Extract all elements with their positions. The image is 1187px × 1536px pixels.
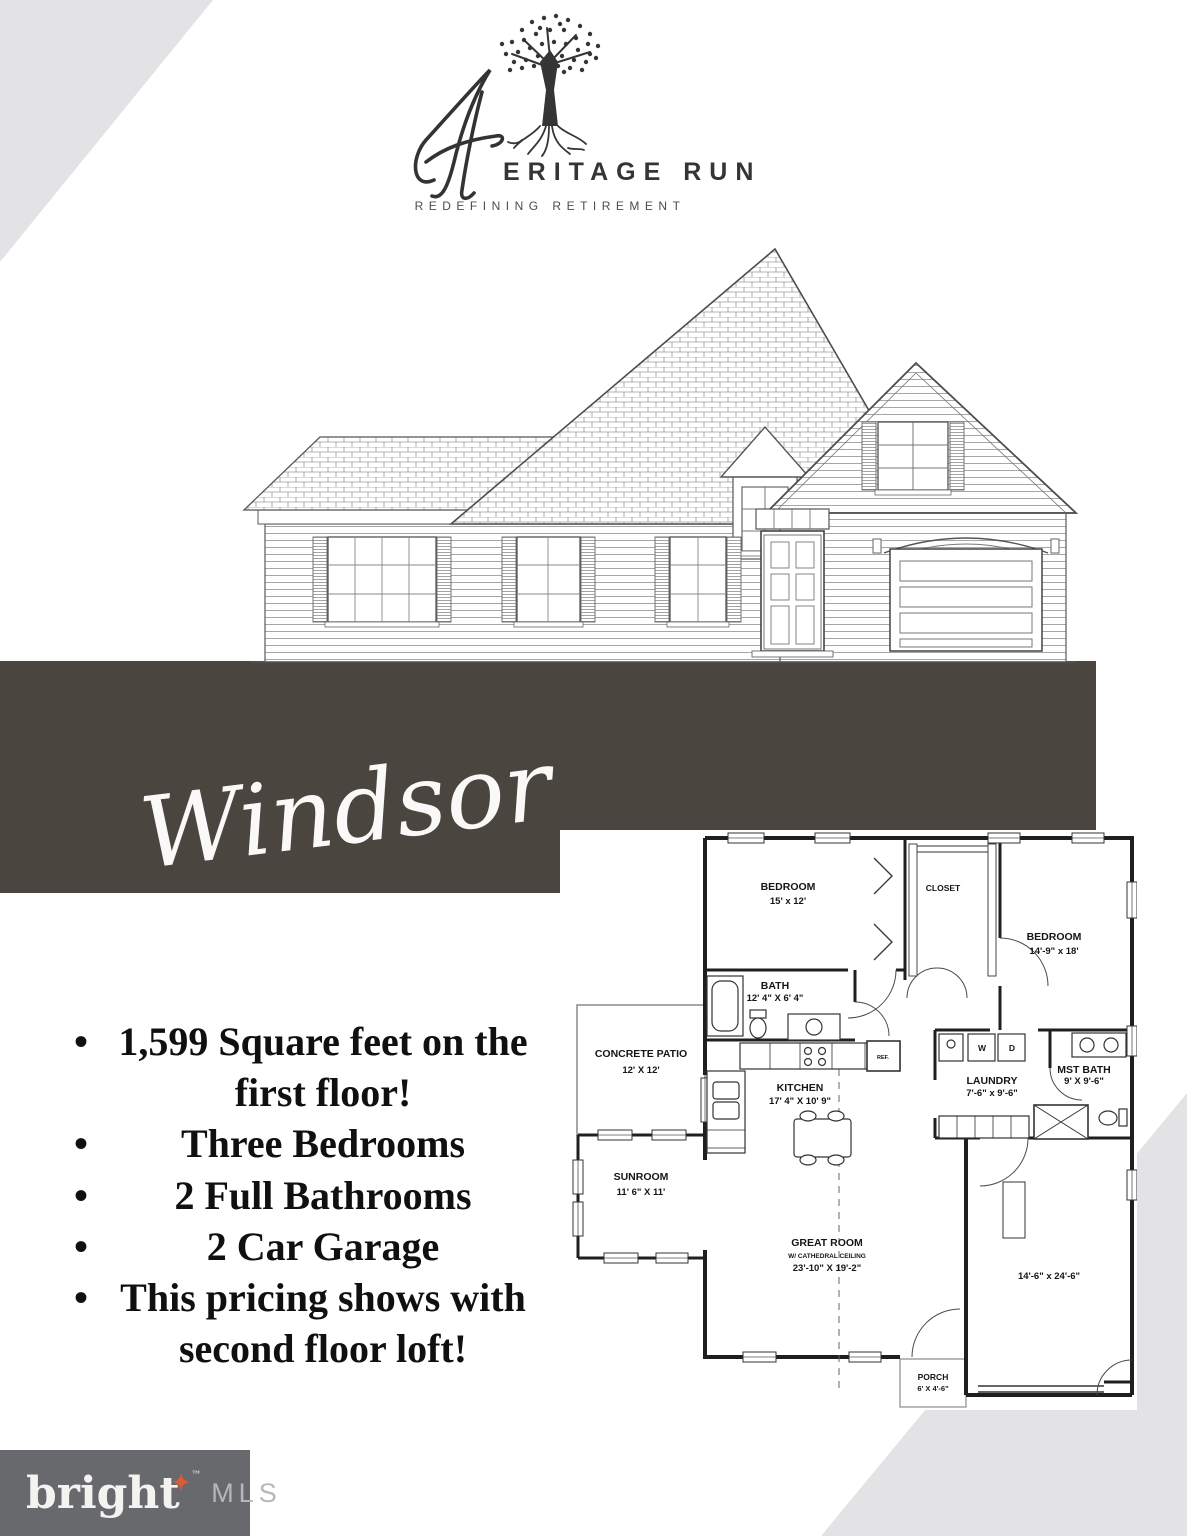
room-label-great-room: GREAT ROOM: [791, 1237, 863, 1249]
room-dims-bath: 12' 4" X 6' 4": [747, 993, 804, 1004]
garage-stair: [1003, 1182, 1025, 1238]
chair: [800, 1111, 816, 1121]
room-dims-garage: 14'-6" x 24'-6": [1018, 1271, 1080, 1282]
mls-label: MLS: [211, 1478, 282, 1509]
room-label-bedroom-1: BEDROOM: [761, 881, 816, 893]
feature-item: •Three Bedrooms: [46, 1118, 566, 1169]
room-sub-great-room: W/ CATHEDRAL CEILING: [788, 1253, 866, 1260]
star-icon: ✦: [172, 1470, 190, 1496]
bullet-dot: •: [74, 1016, 88, 1067]
room-dims-kitchen: 17' 4" X 10' 9": [769, 1096, 831, 1107]
garage-door-mark: [978, 1386, 1104, 1392]
floorplan-drawing: BEDROOM 15' x 12' CLOSET BEDROOM 14'-9" …: [560, 830, 1137, 1410]
bullet-dot: •: [74, 1118, 88, 1169]
room-label-closet: CLOSET: [926, 883, 961, 893]
house-elevation-drawing: [228, 247, 1088, 667]
kitchen-sink: [713, 1082, 739, 1099]
room-dims-bedroom-2: 14'-9" x 18': [1029, 946, 1078, 957]
flyer-page: ERITAGE RUN REDEFINING RETIREMENT: [0, 0, 1187, 1536]
room-label-mst-bath: MST BATH: [1057, 1064, 1110, 1076]
label-washer: W: [978, 1043, 987, 1053]
script-h-initial: [404, 62, 514, 202]
stove-burner: [805, 1048, 812, 1055]
hall-toilet-tank: [1119, 1109, 1127, 1126]
feature-item: •This pricing shows with second floor lo…: [46, 1272, 566, 1374]
room-dims-bedroom-1: 15' x 12': [770, 896, 806, 907]
room-dims-mst-bath: 9' X 9'-6": [1064, 1076, 1104, 1087]
room-label-kitchen: KITCHEN: [777, 1082, 824, 1094]
door-swings: [848, 938, 1132, 1395]
top-left-corner-triangle: [0, 0, 213, 262]
toilet: [750, 1018, 766, 1038]
floorplan-panel: BEDROOM 15' x 12' CLOSET BEDROOM 14'-9" …: [560, 830, 1137, 1410]
room-dims-porch: 6' X 4'-6": [917, 1384, 949, 1393]
brightmls-bar: bright✦™ MLS: [0, 1450, 250, 1536]
porch-lamp-left: [873, 539, 881, 553]
front-window-3: [655, 537, 741, 627]
feature-item: •1,599 Square feet on the first floor!: [46, 1016, 566, 1118]
room-label-laundry: LAUNDRY: [967, 1075, 1018, 1087]
toilet-tank: [750, 1010, 766, 1018]
feature-list: •1,599 Square feet on the first floor! •…: [46, 1016, 566, 1374]
bullet-dot: •: [74, 1272, 88, 1323]
room-label-bath: BATH: [761, 980, 789, 992]
room-label-bedroom-2: BEDROOM: [1027, 931, 1082, 943]
bullet-dot: •: [74, 1221, 88, 1272]
front-window-2: [502, 537, 595, 627]
room-dims-sunroom: 11' 6" X 11': [617, 1187, 666, 1198]
label-dryer: D: [1009, 1043, 1015, 1053]
trademark-symbol: ™: [191, 1470, 201, 1481]
room-label-sunroom: SUNROOM: [614, 1171, 669, 1183]
hall-toilet: [1099, 1111, 1117, 1125]
window-marks: [573, 833, 1137, 1362]
porch-lamp-right: [1051, 539, 1059, 553]
bullet-dot: •: [74, 1170, 88, 1221]
lav-sink: [1080, 1038, 1094, 1052]
room-label-patio: CONCRETE PATIO: [595, 1048, 687, 1060]
room-dims-patio: 12' X 12': [622, 1065, 659, 1076]
label-ref: REF.: [877, 1055, 889, 1061]
feature-item: •2 Car Garage: [46, 1221, 566, 1272]
porch-outline: [900, 1359, 966, 1407]
feature-item: •2 Full Bathrooms: [46, 1170, 566, 1221]
room-label-porch: PORCH: [918, 1372, 949, 1382]
kitchen-table: [794, 1119, 851, 1157]
front-door: [752, 509, 833, 657]
room-dims-laundry: 7'-6" x 9'-6": [966, 1088, 1018, 1099]
front-window-1: [313, 537, 451, 627]
brand-tagline: REDEFINING RETIREMENT: [400, 199, 700, 213]
room-dims-great-room: 23'-10" X 19'-2": [793, 1263, 861, 1274]
brightmls-logo: bright✦™: [26, 1471, 201, 1516]
laundry-cabinets: [939, 1116, 1029, 1138]
closet-shelf: [909, 844, 917, 976]
garage-door: [873, 538, 1059, 651]
brand-wordmark: ERITAGE RUN: [503, 158, 761, 187]
bifold-doors: [874, 858, 892, 960]
